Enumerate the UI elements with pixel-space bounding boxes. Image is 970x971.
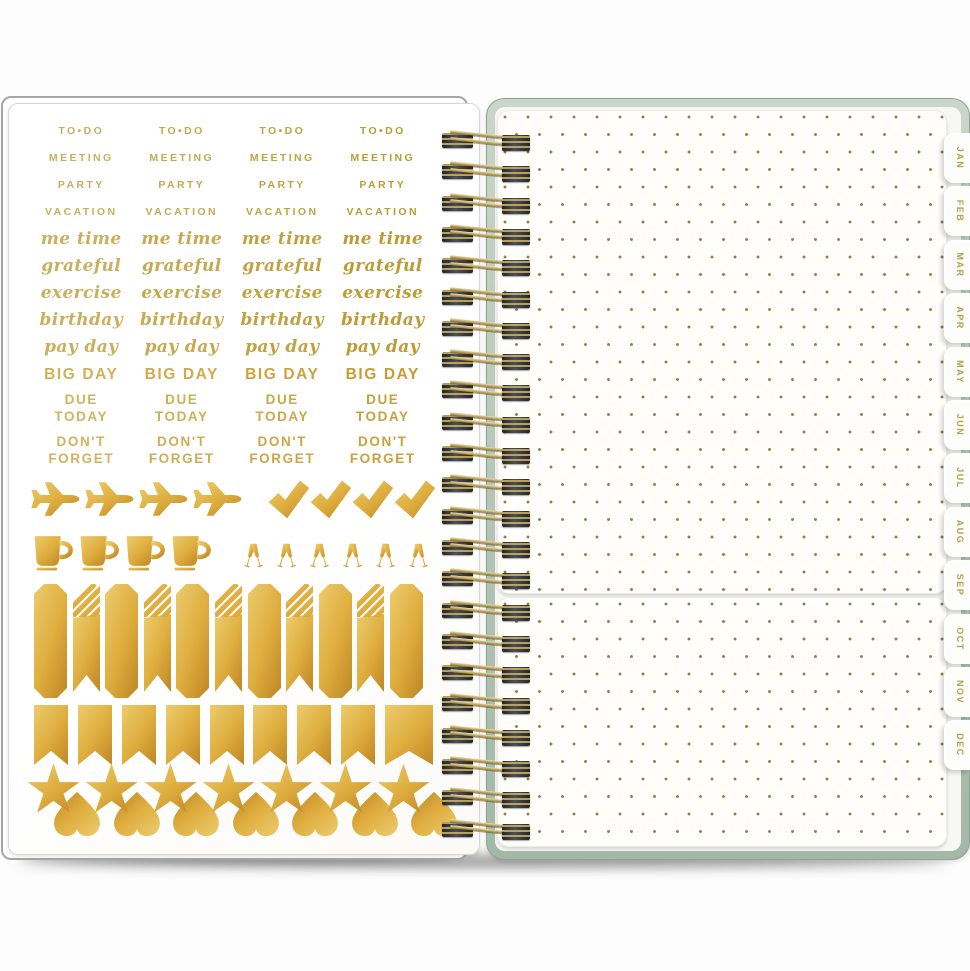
text-sticker: PARTY <box>31 172 132 199</box>
month-tab-label: JUL <box>955 468 965 490</box>
text-sticker: exercise <box>31 280 132 307</box>
text-sticker-row: PARTYPARTYPARTYPARTY <box>31 172 433 199</box>
star-icon <box>260 763 313 814</box>
text-sticker: exercise <box>333 280 434 307</box>
text-sticker: me time <box>31 226 132 253</box>
text-sticker: MEETING <box>132 145 233 172</box>
planner-photo: TO•DOTO•DOTO•DOTO•DOMEETINGMEETINGMEETIN… <box>0 0 970 971</box>
text-sticker: PARTY <box>132 172 233 199</box>
label-strip-icon <box>105 584 138 698</box>
striped-ribbon-icon <box>73 584 100 692</box>
pennant-icon <box>210 705 244 765</box>
month-tab-label: JAN <box>955 147 965 170</box>
binding-anchor-right <box>502 229 530 245</box>
month-tab-may: MAY <box>944 347 970 397</box>
text-sticker: DUE TODAY <box>333 388 434 430</box>
dotted-pocket-top <box>497 110 947 594</box>
checkmark-icon <box>307 476 353 522</box>
month-tab-label: AUG <box>955 520 965 545</box>
text-sticker: pay day <box>132 334 233 361</box>
pennant-icon <box>297 705 331 765</box>
month-tab-label: SEP <box>955 574 965 597</box>
binding-anchor-right <box>502 135 530 151</box>
text-sticker: BIG DAY <box>132 361 233 388</box>
label-strip-icon <box>248 584 281 698</box>
binding-loop <box>440 131 532 151</box>
text-sticker: pay day <box>232 334 333 361</box>
coffee-mug-icon <box>31 529 76 573</box>
striped-ribbon-icon <box>286 584 313 692</box>
champagne-toast-icon <box>403 525 434 577</box>
binding-loop <box>440 507 532 527</box>
text-sticker: VACATION <box>31 199 132 226</box>
pennant-icon <box>122 705 156 765</box>
binding-loop <box>440 319 532 339</box>
text-sticker-row: me timeme timeme timeme time <box>31 226 433 253</box>
binding-anchor-right <box>502 417 530 433</box>
checkmark-icon <box>349 476 395 522</box>
star-icon <box>377 763 430 814</box>
binding-anchor-right <box>502 824 530 840</box>
text-sticker: DUE TODAY <box>232 388 333 430</box>
icon-row-stars <box>27 763 430 814</box>
text-sticker: VACATION <box>333 199 434 226</box>
binding-loop <box>440 757 532 777</box>
text-sticker-row: exerciseexerciseexerciseexercise <box>31 280 433 307</box>
champagne-toast-icon <box>304 525 335 577</box>
binding-anchor-right <box>502 511 530 527</box>
dotted-pocket-bottom <box>497 597 947 847</box>
text-sticker-row: gratefulgratefulgratefulgrateful <box>31 253 433 280</box>
text-sticker: birthday <box>31 307 132 334</box>
label-strip-icon <box>319 584 352 698</box>
star-icon <box>144 763 197 814</box>
month-tab-jan: JAN <box>944 133 970 183</box>
month-tab-dec: DEC <box>944 720 970 770</box>
month-tab-sep: SEP <box>944 560 970 610</box>
binding-anchor-right <box>502 667 530 683</box>
binding-loop <box>440 256 532 276</box>
binding-anchor-right <box>502 605 530 621</box>
star-icon <box>85 763 138 814</box>
binding-anchor-right <box>502 636 530 652</box>
text-sticker: PARTY <box>333 172 434 199</box>
binding-anchor-right <box>502 542 530 558</box>
binding-anchor-right <box>502 354 530 370</box>
binding-loop <box>440 288 532 308</box>
month-tab-label: JUN <box>955 414 965 437</box>
text-sticker-row: pay daypay daypay daypay day <box>31 334 433 361</box>
text-sticker: DON'T FORGET <box>132 430 233 472</box>
text-sticker: grateful <box>333 253 434 280</box>
text-sticker: grateful <box>31 253 132 280</box>
binding-loop <box>440 538 532 558</box>
text-sticker: grateful <box>132 253 233 280</box>
month-tab-jul: JUL <box>944 453 970 503</box>
checkmark-icon <box>265 476 311 522</box>
sticker-sheet-page: TO•DOTO•DOTO•DOTO•DOMEETINGMEETINGMEETIN… <box>8 103 480 855</box>
binding-loop <box>440 225 532 245</box>
binding-anchor-right <box>502 448 530 464</box>
pennant-icon <box>341 705 375 765</box>
pennant-icon <box>253 705 287 765</box>
star-icon <box>319 763 372 814</box>
binding-loop <box>440 663 532 683</box>
pennant-icon <box>166 705 200 765</box>
text-sticker: DUE TODAY <box>132 388 233 430</box>
text-sticker: pay day <box>333 334 434 361</box>
text-sticker: DON'T FORGET <box>31 430 132 472</box>
text-sticker: exercise <box>132 280 233 307</box>
binding-anchor-right <box>502 166 530 182</box>
binding-loop <box>440 350 532 370</box>
champagne-toast-icon <box>238 525 269 577</box>
text-sticker: grateful <box>232 253 333 280</box>
label-strip-icon <box>390 584 423 698</box>
binding-loop <box>440 820 532 840</box>
text-sticker: DON'T FORGET <box>333 430 434 472</box>
binding-loop <box>440 444 532 464</box>
binding-loop <box>440 788 532 808</box>
airplane-icon <box>189 478 243 520</box>
binding-anchor-right <box>502 385 530 401</box>
binding-loop <box>440 726 532 746</box>
month-tab-oct: OCT <box>944 614 970 664</box>
binding-anchor-right <box>502 292 530 308</box>
star-icon <box>27 763 80 814</box>
month-tab-feb: FEB <box>944 186 970 236</box>
text-sticker: MEETING <box>333 145 434 172</box>
text-sticker-row: birthdaybirthdaybirthdaybirthday <box>31 307 433 334</box>
month-tab-label: MAY <box>955 360 965 384</box>
airplane-icon <box>135 478 189 520</box>
binding-anchor-right <box>502 698 530 714</box>
label-strip-icon <box>34 584 67 698</box>
binding-loop <box>440 381 532 401</box>
text-sticker-row: VACATIONVACATIONVACATIONVACATION <box>31 199 433 226</box>
striped-ribbon-icon <box>357 584 384 692</box>
text-sticker-row: BIG DAYBIG DAYBIG DAYBIG DAY <box>31 361 433 388</box>
text-sticker: me time <box>132 226 233 253</box>
champagne-toast-icon <box>271 525 302 577</box>
text-sticker: me time <box>232 226 333 253</box>
binding-loop <box>440 601 532 621</box>
text-sticker: VACATION <box>132 199 233 226</box>
binding-loop <box>440 162 532 182</box>
binding-loop <box>440 475 532 495</box>
text-sticker: MEETING <box>31 145 132 172</box>
striped-ribbon-icon <box>215 584 242 692</box>
text-sticker: exercise <box>232 280 333 307</box>
text-sticker: BIG DAY <box>31 361 132 388</box>
binding-loop <box>440 632 532 652</box>
binding-anchor-right <box>502 479 530 495</box>
text-sticker: TO•DO <box>333 118 434 145</box>
month-tab-aug: AUG <box>944 507 970 557</box>
text-sticker: pay day <box>31 334 132 361</box>
month-tab-label: MAR <box>955 252 965 277</box>
month-tab-label: NOV <box>955 680 965 704</box>
text-sticker: TO•DO <box>132 118 233 145</box>
month-tab-jun: JUN <box>944 400 970 450</box>
binding-loop <box>440 569 532 589</box>
coffee-mug-icon <box>123 529 168 573</box>
binding-anchor-right <box>502 260 530 276</box>
striped-ribbon-icon <box>144 584 171 692</box>
label-strip-icon <box>176 584 209 698</box>
coffee-mug-icon <box>77 529 122 573</box>
text-sticker: birthday <box>132 307 233 334</box>
binding-anchor-right <box>502 573 530 589</box>
text-sticker-row: DON'T FORGETDON'T FORGETDON'T FORGETDON'… <box>31 430 433 472</box>
binding-loop <box>440 194 532 214</box>
airplane-icon <box>81 478 135 520</box>
text-sticker: birthday <box>333 307 434 334</box>
binding-anchor-right <box>502 792 530 808</box>
text-sticker: MEETING <box>232 145 333 172</box>
checkmark-icon <box>391 476 437 522</box>
icon-row-mugs-champagne <box>31 525 436 577</box>
month-tab-label: APR <box>955 306 965 330</box>
text-sticker-row: TO•DOTO•DOTO•DOTO•DO <box>31 118 433 145</box>
month-tab-mar: MAR <box>944 240 970 290</box>
coffee-mug-icon <box>169 529 214 573</box>
icon-row-travel-checks <box>27 472 437 526</box>
text-sticker: DUE TODAY <box>31 388 132 430</box>
champagne-toast-icon <box>370 525 401 577</box>
text-sticker: birthday <box>232 307 333 334</box>
text-sticker: TO•DO <box>31 118 132 145</box>
pennant-icon <box>78 705 112 765</box>
text-sticker: VACATION <box>232 199 333 226</box>
month-tab-label: OCT <box>955 627 965 651</box>
text-sticker: TO•DO <box>232 118 333 145</box>
text-sticker-row: DUE TODAYDUE TODAYDUE TODAYDUE TODAY <box>31 388 433 430</box>
binding-anchor-right <box>502 761 530 777</box>
star-icon <box>202 763 255 814</box>
text-sticker: PARTY <box>232 172 333 199</box>
pennant-icon <box>34 705 68 765</box>
month-tab-apr: APR <box>944 293 970 343</box>
binding-loop <box>440 413 532 433</box>
champagne-toast-icon <box>337 525 368 577</box>
month-tab-label: DEC <box>955 734 965 758</box>
text-sticker: DON'T FORGET <box>232 430 333 472</box>
text-sticker: BIG DAY <box>333 361 434 388</box>
text-sticker-row: MEETINGMEETINGMEETINGMEETING <box>31 145 433 172</box>
binding-anchor-right <box>502 198 530 214</box>
binding-loop <box>440 694 532 714</box>
icon-row-banners <box>34 584 423 698</box>
month-tab-nov: NOV <box>944 667 970 717</box>
text-sticker: BIG DAY <box>232 361 333 388</box>
binding-anchor-right <box>502 730 530 746</box>
airplane-icon <box>27 478 81 520</box>
text-sticker-grid: TO•DOTO•DOTO•DOTO•DOMEETINGMEETINGMEETIN… <box>31 118 433 472</box>
binding-anchor-right <box>502 323 530 339</box>
icon-row-pennants <box>34 705 433 765</box>
text-sticker: me time <box>333 226 434 253</box>
month-tab-label: FEB <box>955 200 965 223</box>
pennant-wide-icon <box>385 705 433 765</box>
